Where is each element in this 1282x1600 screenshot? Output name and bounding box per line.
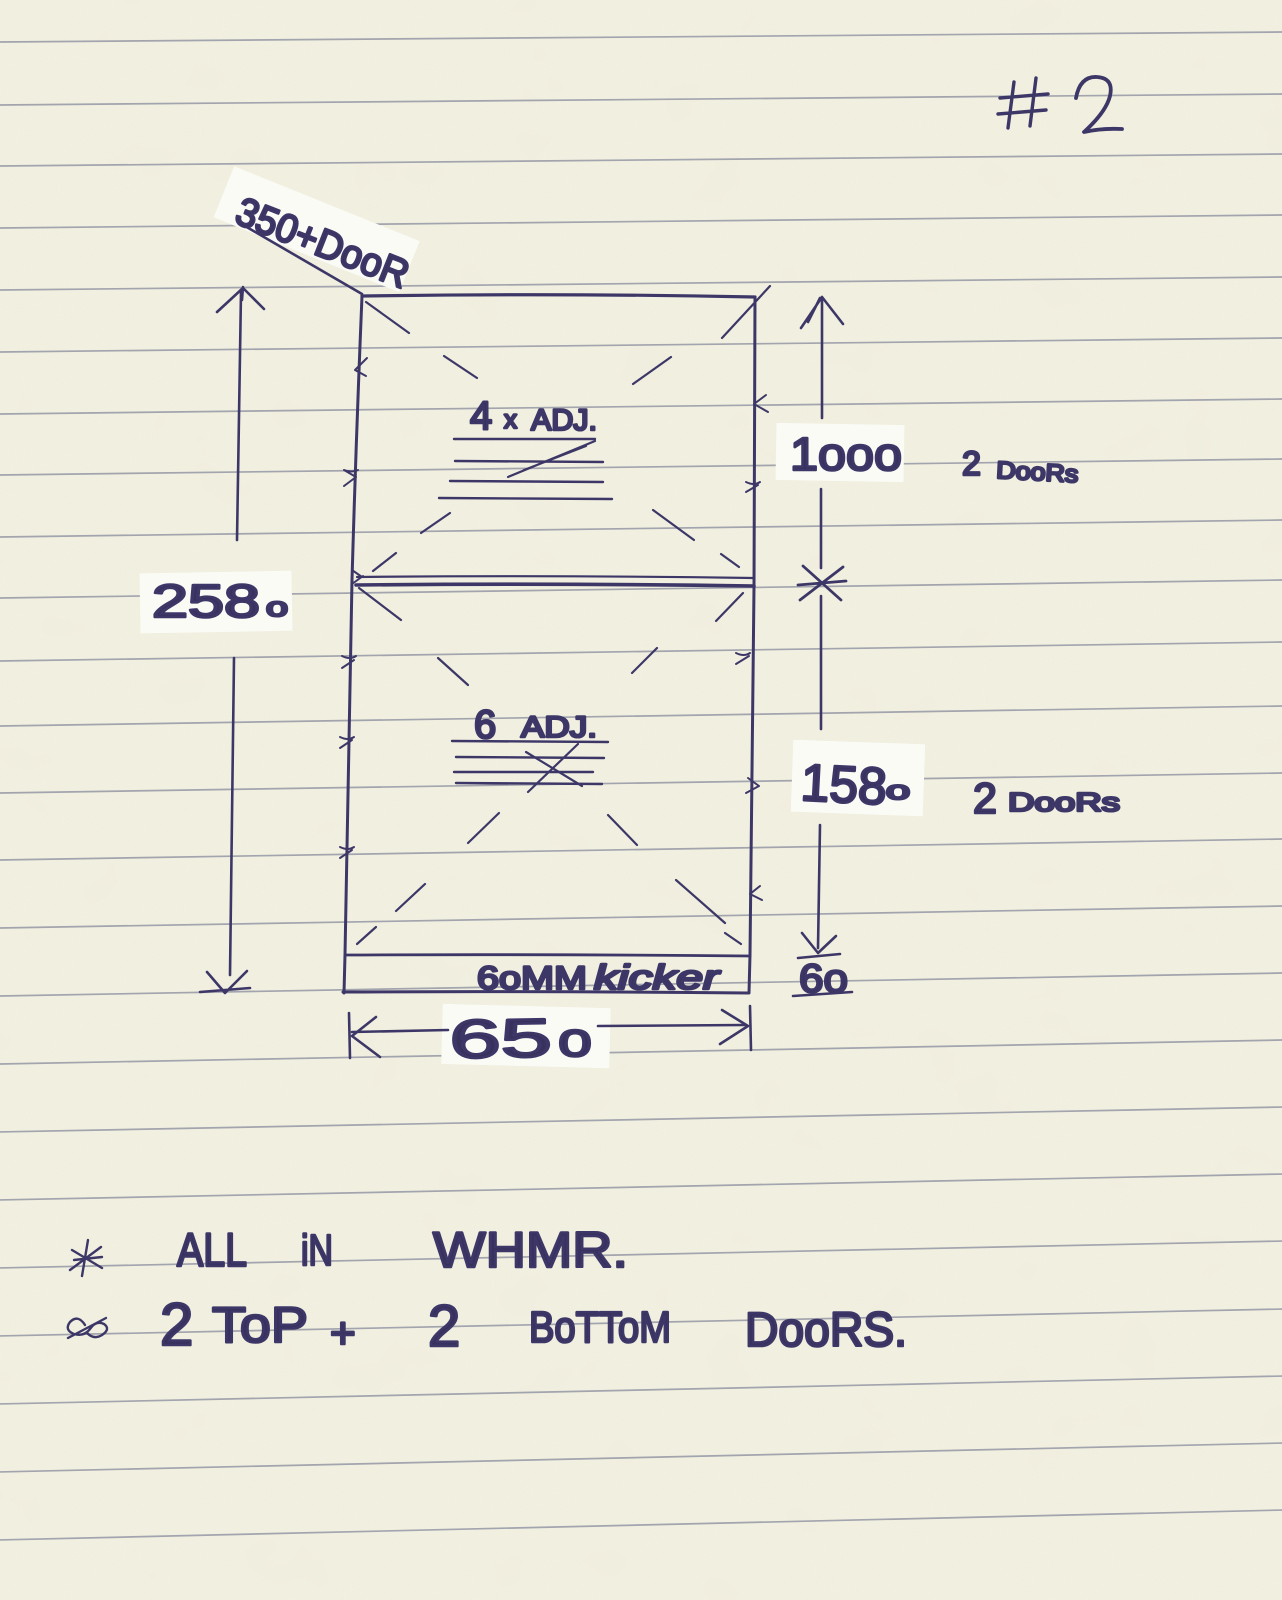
svg-text:2: 2: [160, 1291, 193, 1358]
svg-text:2: 2: [962, 445, 981, 483]
svg-text:1ooo: 1ooo: [790, 428, 902, 480]
svg-text:kicker: kicker: [594, 959, 721, 997]
svg-text:65: 65: [449, 1008, 552, 1070]
svg-text:ADJ.: ADJ.: [521, 711, 597, 744]
svg-text:158: 158: [799, 754, 888, 816]
svg-text:x: x: [504, 404, 517, 434]
svg-text:DooRs: DooRs: [996, 457, 1079, 488]
svg-text:6: 6: [474, 703, 496, 747]
svg-text:6o: 6o: [799, 957, 848, 1001]
svg-text:+: +: [330, 1309, 356, 1358]
svg-text:6oMM: 6oMM: [477, 960, 587, 996]
svg-text:DooRS.: DooRS.: [745, 1304, 907, 1357]
svg-text:ADJ.: ADJ.: [531, 404, 597, 437]
svg-text:o: o: [558, 1014, 592, 1067]
svg-text:258: 258: [152, 575, 260, 627]
svg-text:WHMR.: WHMR.: [433, 1222, 628, 1278]
svg-text:2: 2: [428, 1294, 460, 1359]
svg-text:o: o: [886, 775, 910, 805]
svg-text:ToP: ToP: [212, 1297, 308, 1353]
svg-text:BoTToM: BoTToM: [529, 1303, 671, 1352]
svg-text:DooRs: DooRs: [1008, 787, 1120, 817]
svg-text:iN: iN: [301, 1226, 333, 1275]
svg-text:ALL: ALL: [177, 1223, 247, 1276]
svg-text:4: 4: [470, 394, 492, 438]
svg-text:o: o: [266, 592, 288, 622]
svg-text:2: 2: [973, 775, 997, 823]
